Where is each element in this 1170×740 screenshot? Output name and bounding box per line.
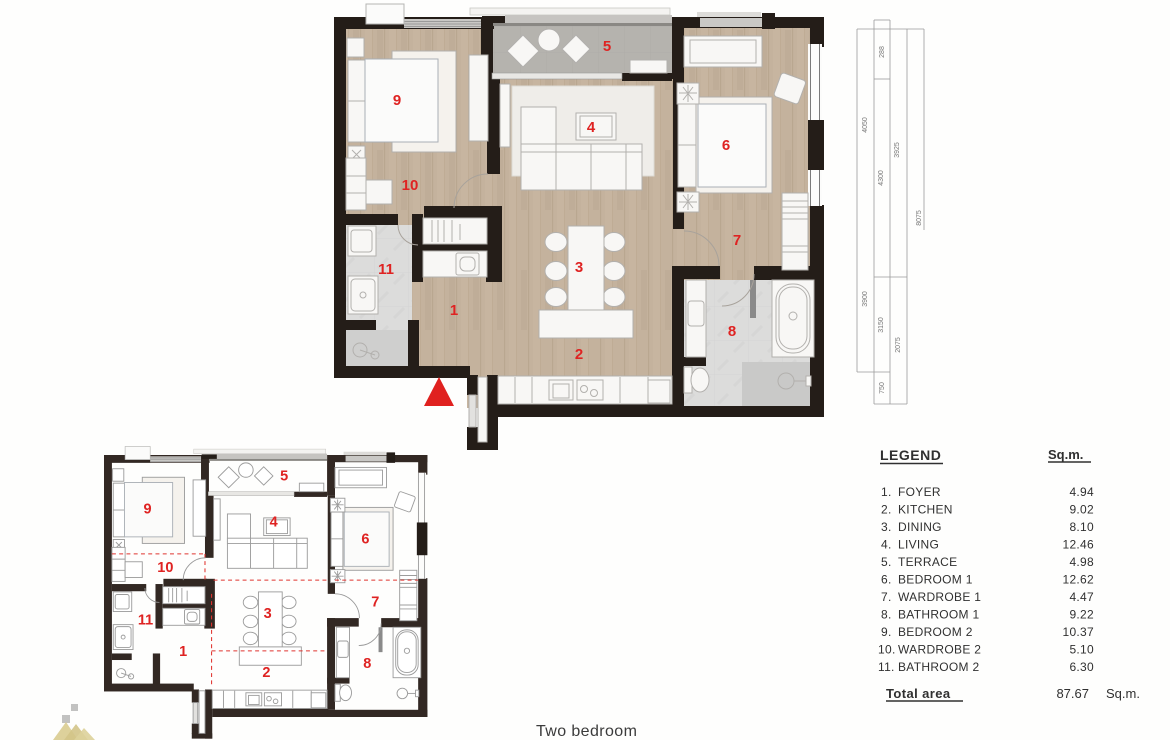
svg-text:2075: 2075	[895, 337, 902, 353]
svg-text:11: 11	[138, 613, 153, 629]
svg-text:3900: 3900	[862, 291, 869, 307]
svg-text:BEDROOM 2: BEDROOM 2	[898, 625, 973, 639]
svg-text:8.10: 8.10	[1069, 520, 1094, 534]
svg-text:12.62: 12.62	[1062, 573, 1094, 587]
svg-text:3.: 3.	[881, 520, 892, 534]
svg-text:8: 8	[728, 323, 736, 340]
svg-text:9: 9	[144, 501, 152, 517]
svg-text:DINING: DINING	[898, 520, 942, 534]
svg-text:8: 8	[363, 656, 371, 672]
svg-text:8075: 8075	[916, 210, 923, 226]
svg-text:3: 3	[575, 259, 583, 276]
svg-text:9.22: 9.22	[1069, 608, 1094, 622]
svg-text:750: 750	[879, 382, 886, 394]
svg-text:10: 10	[157, 560, 173, 576]
svg-text:WARDROBE 1: WARDROBE 1	[898, 590, 981, 604]
svg-text:6.: 6.	[881, 573, 892, 587]
svg-text:4.98: 4.98	[1069, 555, 1094, 569]
svg-text:288: 288	[879, 46, 886, 58]
svg-text:4.: 4.	[881, 538, 892, 552]
svg-text:4300: 4300	[878, 170, 885, 186]
svg-text:10.: 10.	[878, 643, 896, 657]
svg-text:4050: 4050	[862, 117, 869, 133]
svg-text:10.37: 10.37	[1062, 625, 1094, 639]
svg-text:FOYER: FOYER	[898, 485, 941, 499]
svg-text:4: 4	[270, 514, 278, 530]
svg-text:BATHROOM 2: BATHROOM 2	[898, 660, 979, 674]
svg-text:9.: 9.	[881, 625, 892, 639]
svg-text:Sq.m.: Sq.m.	[1048, 447, 1083, 462]
svg-text:4: 4	[587, 119, 596, 136]
svg-text:12.46: 12.46	[1062, 538, 1094, 552]
svg-text:KITCHEN: KITCHEN	[898, 503, 953, 517]
svg-text:5.10: 5.10	[1069, 643, 1094, 657]
svg-text:7.: 7.	[881, 590, 892, 604]
svg-text:Total area: Total area	[886, 686, 951, 701]
svg-text:3925: 3925	[894, 142, 901, 158]
svg-text:9: 9	[393, 92, 401, 109]
svg-text:4.94: 4.94	[1069, 485, 1094, 499]
svg-text:6.30: 6.30	[1069, 660, 1094, 674]
svg-text:11: 11	[378, 261, 394, 278]
svg-text:1: 1	[179, 644, 187, 660]
svg-text:1: 1	[450, 302, 458, 319]
svg-text:BEDROOM 1: BEDROOM 1	[898, 573, 973, 587]
svg-text:10: 10	[402, 177, 419, 194]
svg-text:1.: 1.	[881, 485, 892, 499]
svg-text:7: 7	[371, 594, 379, 610]
svg-text:8.: 8.	[881, 608, 892, 622]
svg-text:2.: 2.	[881, 503, 892, 517]
svg-text:3150: 3150	[878, 317, 885, 333]
svg-text:LEGEND: LEGEND	[880, 447, 941, 463]
svg-text:5.: 5.	[881, 555, 892, 569]
svg-text:2: 2	[262, 665, 270, 681]
svg-text:3: 3	[264, 606, 272, 622]
svg-text:6: 6	[722, 137, 730, 154]
svg-text:11.: 11.	[878, 660, 895, 674]
svg-text:5: 5	[603, 38, 611, 55]
svg-text:6: 6	[361, 531, 369, 547]
svg-text:4.47: 4.47	[1069, 590, 1094, 604]
svg-text:WARDROBE 2: WARDROBE 2	[898, 643, 981, 657]
svg-text:2: 2	[575, 346, 583, 363]
svg-text:LIVING: LIVING	[898, 538, 939, 552]
svg-text:5: 5	[280, 469, 288, 485]
svg-text:Two bedroom: Two bedroom	[536, 723, 637, 740]
svg-text:87.67: 87.67	[1056, 686, 1089, 701]
svg-text:Sq.m.: Sq.m.	[1106, 686, 1140, 701]
svg-text:7: 7	[733, 232, 741, 249]
svg-text:9.02: 9.02	[1069, 503, 1094, 517]
svg-text:TERRACE: TERRACE	[898, 555, 957, 569]
svg-text:BATHROOM 1: BATHROOM 1	[898, 608, 979, 622]
